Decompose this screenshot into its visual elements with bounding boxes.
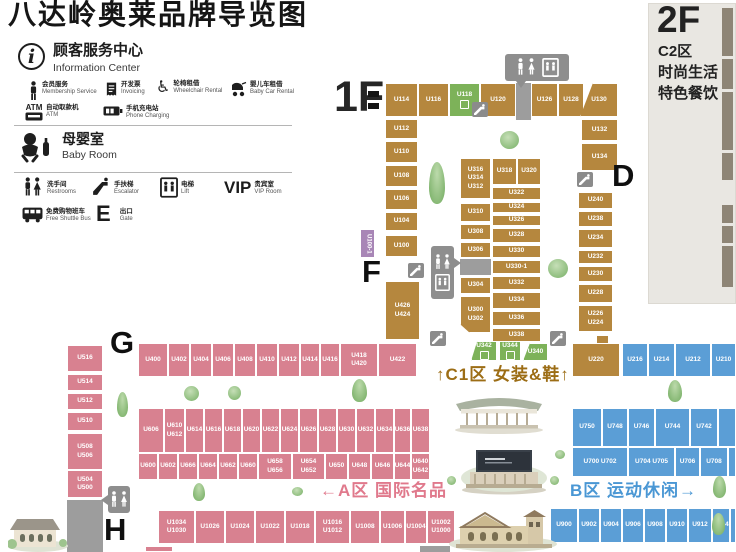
- store-unit-label: U620: [244, 426, 260, 434]
- store-unit-U630: U630: [337, 408, 356, 453]
- store-unit-label: U342: [476, 342, 492, 350]
- store-unit-label: U500: [77, 484, 93, 492]
- woman-icon: [120, 491, 128, 509]
- store-unit-U104: U104: [385, 212, 418, 231]
- store-unit-U620: U620: [242, 408, 261, 453]
- gate-letter-f: F: [362, 256, 381, 287]
- store-unit-label: U334: [509, 296, 525, 304]
- store-unit-U704: U704 U705: [628, 447, 675, 477]
- store-unit-label: U1018: [290, 523, 309, 531]
- store-unit-U636: U636: [394, 408, 411, 453]
- store-unit-label: U630: [339, 426, 355, 434]
- store-unit-label: U906: [625, 521, 641, 529]
- store-unit-label: U338: [509, 331, 525, 339]
- store-unit-label: U224: [588, 319, 604, 327]
- store-unit-label: U110: [394, 148, 409, 156]
- store-unit-label: U706: [680, 458, 696, 466]
- store-unit-U610: U610U612: [164, 408, 185, 453]
- store-unit-U400: U400: [138, 343, 168, 377]
- store-unit-label: U900: [556, 521, 572, 529]
- store-unit-U212: U212: [675, 343, 711, 377]
- store-unit-U304: U304: [460, 277, 491, 294]
- store-unit-U904: U904: [600, 508, 622, 543]
- store-unit-label: U406: [215, 356, 231, 364]
- gate-e-badge: E: [96, 203, 111, 225]
- store-unit-label: U912: [692, 521, 708, 529]
- sign-pointer: [454, 258, 461, 268]
- store-unit-U404: U404: [190, 343, 212, 377]
- store-unit-U344: U344: [499, 341, 521, 361]
- store-unit-label: U902: [581, 521, 597, 529]
- store-unit-label: U416: [322, 356, 338, 364]
- tree-icon: [712, 513, 725, 535]
- store-unit-U326: U326: [492, 215, 541, 226]
- legend-item-membership: 会员服务Membership Service: [28, 81, 97, 101]
- store-unit-label: U506: [77, 452, 93, 460]
- map-area: [728, 447, 736, 477]
- store-unit-label: U328: [509, 231, 525, 239]
- entrance-marker: [368, 103, 379, 109]
- f2-map-block: [722, 153, 733, 180]
- store-unit-U626: U626: [299, 408, 318, 453]
- store-unit-U308: U308: [460, 224, 491, 240]
- store-unit-label: U650: [329, 462, 345, 470]
- store-unit-U410: U410: [256, 343, 278, 377]
- floor-2f-panel: 2F C2区 时尚生活 特色餐饮: [648, 3, 736, 304]
- legend-item-baby-room: 母婴室 Baby Room: [18, 132, 117, 164]
- floor-label-1f: 1F: [334, 76, 384, 119]
- store-unit-label: U402: [171, 356, 187, 364]
- store-unit-label: U422: [390, 356, 406, 364]
- f2-map-block: [722, 205, 733, 223]
- store-unit-U750: U750: [572, 408, 602, 447]
- escalator-icon: [577, 172, 593, 187]
- battery-icon: [103, 105, 123, 117]
- restroom-lift-sign: [431, 246, 454, 299]
- store-unit-label: U100: [394, 242, 410, 250]
- store-unit-label: U330: [509, 247, 525, 255]
- store-unit-label: U904: [603, 521, 619, 529]
- store-unit-U658: U658U656: [258, 453, 292, 480]
- zone-label-c1: ↑C1区 女装&鞋↑: [436, 360, 570, 385]
- store-unit-label: U104: [394, 217, 410, 225]
- tree-icon: [550, 476, 559, 485]
- store-unit-label: U412: [281, 356, 297, 364]
- f2-map-block: [722, 59, 733, 89]
- legend-item-restrooms: 洗手间Restrooms: [22, 177, 76, 198]
- store-unit-label: U214: [654, 356, 670, 364]
- store-unit-U328: U328: [492, 228, 541, 243]
- store-unit-U746: U746: [628, 408, 655, 447]
- store-unit-label: U330-1: [506, 263, 527, 271]
- legend-item-stroller: 婴儿车租借Baby Car Rental: [230, 81, 294, 98]
- store-unit-label: U114: [394, 96, 409, 104]
- info-center-title-en: Information Center: [53, 62, 143, 74]
- store-unit-label: U750: [579, 423, 595, 431]
- store-unit-U234: U234: [578, 229, 613, 248]
- tree-icon: [713, 476, 726, 498]
- escalator-icon: [550, 331, 566, 346]
- store-unit-label: U644: [395, 462, 411, 470]
- store-unit-label: U744: [665, 423, 681, 431]
- store-unit-label: U112: [394, 125, 409, 133]
- store-unit-U336: U336: [492, 311, 541, 326]
- store-unit-U1018: U1018: [285, 510, 315, 544]
- legend-divider: [14, 125, 292, 126]
- receipt-icon: [105, 81, 118, 99]
- map-area: [596, 335, 609, 344]
- store-unit-label: U400: [145, 356, 161, 364]
- f2-map-block: [722, 246, 733, 287]
- f2-map-block: [722, 226, 733, 243]
- store-unit-label: U310: [468, 208, 484, 216]
- store-unit-U1006: U1006: [380, 510, 405, 544]
- store-unit-label: U510: [77, 417, 93, 425]
- gate-letter-d: D: [612, 160, 634, 191]
- store-unit-label: U312: [468, 183, 484, 191]
- store-unit-label: U664: [200, 462, 216, 470]
- building-illustration-villa: [448, 510, 558, 552]
- store-unit-U426: U426U424: [385, 281, 420, 340]
- zone-label-a: ←A区 国际名品: [320, 476, 447, 501]
- building-illustration-billboard: [460, 448, 548, 498]
- store-unit-U230: U230: [578, 266, 613, 282]
- store-unit-U220: U220: [572, 343, 620, 377]
- store-unit-U748: U748: [602, 408, 628, 447]
- person-icon: [28, 81, 39, 101]
- tree-icon: [500, 131, 519, 149]
- store-unit-label: U1026: [200, 523, 219, 531]
- store-unit-label: U658: [267, 458, 283, 466]
- store-unit-U706: U706: [675, 447, 700, 477]
- store-unit-U406: U406: [212, 343, 234, 377]
- store-unit-label: U134: [592, 153, 608, 161]
- store-unit-U128: U128: [558, 83, 584, 117]
- store-unit-label: U642: [413, 467, 429, 475]
- store-unit-U632: U632: [356, 408, 375, 453]
- store-unit-label: U1022: [260, 523, 279, 531]
- store-unit-label: U1034: [167, 519, 186, 527]
- store-unit-label: U656: [267, 467, 283, 475]
- store-unit-U126: U126: [531, 83, 558, 117]
- store-unit-label: U426: [395, 302, 411, 310]
- map-area: [145, 546, 173, 552]
- store-unit-U216: U216: [622, 343, 648, 377]
- store-unit-label: U612: [167, 431, 183, 439]
- store-unit-label: U1012: [323, 527, 342, 535]
- store-unit-label: U602: [160, 462, 176, 470]
- shop-icon: [506, 351, 515, 360]
- store-unit-label: U628: [320, 426, 336, 434]
- store-unit-label: U910: [669, 521, 685, 529]
- baby-room-icon: [18, 132, 52, 164]
- store-unit-label: U304: [468, 281, 484, 289]
- store-unit-label: U1016: [323, 519, 342, 527]
- store-unit-label: U306: [468, 246, 484, 254]
- store-unit-U628: U628: [318, 408, 337, 453]
- store-unit-U330: U330: [492, 245, 541, 258]
- store-unit-U322: U322: [492, 187, 541, 200]
- legend-item-phone-charging: 手机充电站Phone Charging: [103, 105, 169, 121]
- info-icon: i: [18, 43, 45, 70]
- store-unit-label: U336: [509, 314, 525, 322]
- store-unit-U742: U742: [690, 408, 718, 447]
- entrance-marker: [368, 91, 379, 97]
- store-unit-U340: U340: [523, 343, 548, 361]
- lift-icon: [160, 177, 178, 198]
- store-unit-U306: U306: [460, 242, 491, 258]
- store-unit-label: U640: [413, 458, 429, 466]
- store-unit-label: U240: [588, 196, 604, 204]
- store-unit-label: U666: [180, 462, 196, 470]
- man-icon: [110, 491, 118, 509]
- legend-item-gate-e: E 出口Gate: [96, 203, 133, 225]
- store-unit-U414: U414: [300, 343, 320, 377]
- lift-icon: [542, 58, 559, 77]
- tree-icon: [228, 386, 241, 400]
- store-unit-label: U626: [301, 426, 317, 434]
- store-unit-U910: U910: [666, 508, 688, 543]
- store-unit-label: U748: [607, 423, 623, 431]
- store-unit-U318: U318: [492, 158, 517, 185]
- map-area: [718, 408, 736, 447]
- store-unit-U622: U622: [261, 408, 280, 453]
- store-unit-U330-1: U330-1: [492, 260, 541, 274]
- store-unit-U606: U606: [138, 408, 164, 453]
- lift-icon: [435, 274, 450, 291]
- store-unit-label: U632: [358, 426, 374, 434]
- store-unit-U516: U516: [67, 345, 103, 372]
- woman-icon: [527, 58, 536, 77]
- store-unit-U106: U106: [385, 189, 418, 210]
- restrooms-icon: [22, 177, 44, 198]
- wheelchair-icon: ♿: [156, 80, 170, 96]
- store-unit-label: U746: [634, 423, 650, 431]
- store-unit-label: U420: [351, 360, 367, 368]
- man-icon: [516, 58, 525, 77]
- store-unit-U418: U418U420: [340, 343, 378, 377]
- store-unit-label: U616: [206, 426, 222, 434]
- store-unit-label: U704 U705: [635, 458, 668, 466]
- tree-icon: [447, 476, 456, 485]
- store-unit-label: U126: [537, 96, 553, 104]
- store-unit-U1008: U1008: [350, 510, 380, 544]
- tree-icon: [184, 386, 199, 401]
- store-unit-U600: U600: [138, 453, 158, 480]
- store-unit-label: U504: [77, 476, 93, 484]
- store-unit-U708: U708: [700, 447, 728, 477]
- store-unit-U660: U660: [238, 453, 258, 480]
- tree-icon: [352, 379, 367, 402]
- store-unit-U334: U334: [492, 292, 541, 309]
- store-unit-label: U648: [352, 462, 368, 470]
- store-unit-label: U318: [497, 167, 513, 175]
- sign-pointer: [516, 81, 526, 88]
- store-unit-label: U106: [394, 195, 410, 203]
- tree-icon: [117, 392, 128, 417]
- store-unit-U300: U300U302: [460, 296, 491, 333]
- store-unit-U1016: U1016U1012: [315, 510, 350, 544]
- store-unit-U666: U666: [178, 453, 198, 480]
- tree-icon: [548, 259, 568, 278]
- store-unit-U624: U624: [280, 408, 299, 453]
- store-unit-U416: U416: [320, 343, 340, 377]
- store-unit-label: U320: [521, 167, 537, 175]
- store-unit-label: U228: [588, 289, 604, 297]
- map-area: [420, 546, 450, 552]
- map-area: [67, 500, 103, 552]
- store-unit-U614: U614: [185, 408, 204, 453]
- store-unit-U912: U912: [688, 508, 712, 543]
- store-unit-label: U418: [351, 352, 367, 360]
- store-unit-U508: U508U506: [67, 433, 103, 470]
- zone-label-b: B区 运动休闲→: [570, 476, 697, 501]
- store-unit-label: U118: [457, 91, 472, 99]
- store-unit-U602: U602: [158, 453, 178, 480]
- store-unit-U664: U664: [198, 453, 218, 480]
- store-unit-U342: U342: [471, 341, 497, 361]
- store-unit-label: U618: [225, 426, 241, 434]
- store-unit-U1024: U1024: [225, 510, 255, 544]
- escalator-icon: [408, 263, 424, 278]
- store-unit-label: U232: [588, 253, 604, 261]
- store-unit-label: U322: [509, 189, 525, 197]
- f2-map-block: [722, 8, 733, 56]
- store-unit-label: U128: [563, 96, 579, 104]
- store-unit-label: U210: [716, 356, 732, 364]
- store-unit-U310: U310: [460, 203, 491, 222]
- store-unit-U662: U662: [218, 453, 238, 480]
- store-unit-label: U308: [468, 228, 484, 236]
- legend-divider: [14, 172, 292, 173]
- store-unit-label: U908: [647, 521, 663, 529]
- restroom-lift-sign: [505, 54, 569, 81]
- store-unit-label: U302: [468, 315, 484, 323]
- store-unit-U338: U338: [492, 328, 541, 342]
- store-unit-U422: U422: [378, 343, 417, 377]
- store-unit-U902: U902: [578, 508, 600, 543]
- store-unit-label: U226: [588, 310, 604, 318]
- gate-letter-h: H: [104, 514, 126, 545]
- store-unit-label: U414: [302, 356, 318, 364]
- store-unit-U504: U504U500: [67, 470, 103, 498]
- store-unit-label: U660: [240, 462, 256, 470]
- store-unit-U240: U240: [578, 192, 613, 209]
- store-unit-label: U120: [490, 96, 506, 104]
- store-unit-label: U340: [528, 348, 544, 356]
- store-unit-label: U622: [263, 426, 279, 434]
- tree-icon: [555, 450, 565, 459]
- store-unit-label: U314: [468, 174, 484, 182]
- building-illustration-pavilion: [452, 390, 546, 436]
- store-unit-label: U230: [588, 270, 604, 278]
- store-unit-label: U624: [282, 426, 298, 434]
- store-unit-label: U410: [259, 356, 275, 364]
- building-illustration-house: [8, 516, 72, 552]
- legend-item-invoicing: 开发票Invoicing: [105, 81, 145, 99]
- escalator-icon: [472, 102, 488, 117]
- stroller-icon: [230, 81, 247, 98]
- legend-item-vip: VIP 贵宾室VIP Room: [224, 179, 282, 197]
- store-unit-label: U234: [588, 234, 604, 242]
- store-unit-label: U606: [143, 426, 159, 434]
- tree-icon: [193, 483, 205, 501]
- bus-icon: [22, 206, 43, 223]
- store-unit-label: U636: [395, 426, 411, 434]
- store-unit-U402: U402: [168, 343, 190, 377]
- escalator-icon: [430, 331, 446, 346]
- store-unit-label: U332: [509, 279, 525, 287]
- store-unit-label: U116: [426, 96, 441, 104]
- store-unit-U108: U108: [385, 165, 418, 187]
- store-unit-U906: U906: [622, 508, 644, 543]
- store-unit-label: U646: [375, 462, 391, 470]
- store-unit-U618: U618: [223, 408, 242, 453]
- store-unit-label: U742: [696, 423, 712, 431]
- store-unit-label: U424: [395, 311, 411, 319]
- legend-panel: i 顾客服务中心 Information Center 会员服务Membersh…: [8, 38, 300, 238]
- store-unit-U320: U320: [517, 158, 541, 185]
- store-unit-label: U324: [509, 203, 525, 211]
- mall-directory-map: 八达岭奥莱品牌导览图 i 顾客服务中心 Information Center 会…: [0, 0, 736, 552]
- store-unit-label: U1030: [167, 527, 186, 535]
- store-unit-label: U220: [588, 356, 604, 364]
- store-unit-label: U216: [627, 356, 643, 364]
- store-unit-U116: U116: [418, 83, 449, 117]
- store-unit-label: U108: [394, 172, 410, 180]
- store-unit-U512: U512: [67, 393, 103, 410]
- legend-item-escalator: 手扶梯Escalator: [92, 177, 139, 197]
- store-unit-label: U1004: [406, 523, 425, 531]
- info-center-title-zh: 顾客服务中心: [53, 43, 143, 60]
- restroom-sign: [108, 486, 130, 513]
- store-unit-U132: U132: [581, 119, 618, 141]
- store-unit-U510: U510: [67, 412, 103, 431]
- store-unit-label: U404: [193, 356, 209, 364]
- escalator-icon: [92, 177, 111, 196]
- store-unit-U634: U634: [375, 408, 394, 453]
- page-title: 八达岭奥莱品牌导览图: [8, 0, 308, 33]
- map-area: [460, 259, 491, 275]
- vip-badge: VIP: [224, 179, 251, 196]
- man-icon: [434, 254, 442, 271]
- store-unit-U232: U232: [578, 250, 613, 264]
- tree-icon: [292, 487, 303, 496]
- store-unit-U1034: U1034U1030: [158, 510, 195, 544]
- store-unit-U744: U744: [655, 408, 690, 447]
- map-area: [730, 508, 736, 543]
- store-unit-label: U344: [502, 342, 518, 350]
- gate-letter-g: G: [110, 327, 134, 358]
- store-unit-label: U512: [77, 397, 93, 405]
- store-unit-label: U508: [77, 443, 93, 451]
- store-unit-label: U1006: [383, 523, 402, 531]
- store-unit-U228: U228: [578, 284, 613, 303]
- store-unit-U1026: U1026: [195, 510, 225, 544]
- store-unit-label: U654: [301, 458, 317, 466]
- store-unit-U412: U412: [278, 343, 300, 377]
- store-unit-U514: U514: [67, 374, 103, 391]
- store-unit-U616: U616: [204, 408, 223, 453]
- store-unit-U238: U238: [578, 211, 613, 227]
- store-unit-label: U212: [685, 356, 701, 364]
- store-unit-label: U610: [167, 422, 183, 430]
- store-unit-label: U326: [509, 216, 525, 224]
- store-unit-label: U132: [592, 126, 608, 134]
- store-unit-label: U614: [187, 426, 203, 434]
- store-unit-label: U238: [588, 215, 604, 223]
- store-unit-label: U652: [301, 467, 317, 475]
